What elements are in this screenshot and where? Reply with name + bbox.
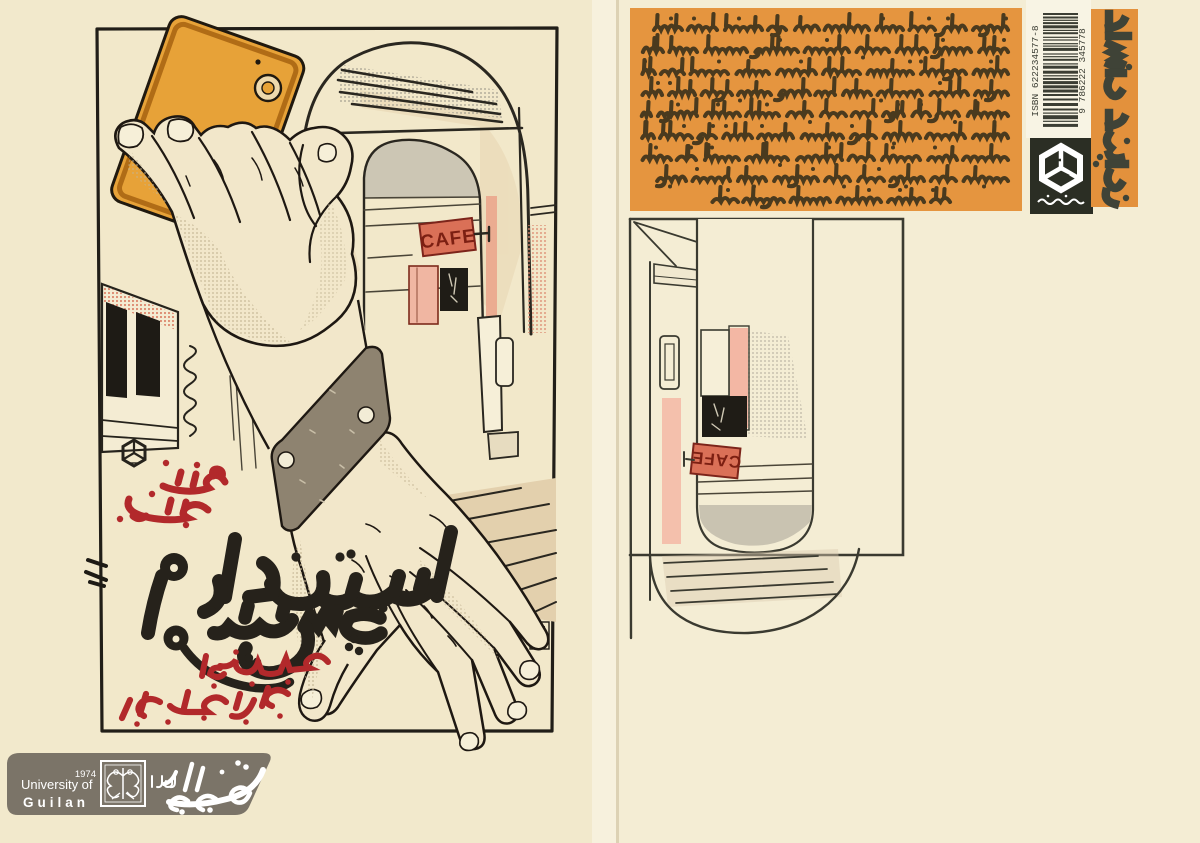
svg-text:9 786222 345778: 9 786222 345778 [1077, 28, 1088, 114]
svg-text:University of: University of [21, 777, 93, 792]
svg-text:Guilan: Guilan [23, 795, 89, 810]
svg-text:ISBN 622234577-8: ISBN 622234577-8 [1030, 25, 1041, 117]
